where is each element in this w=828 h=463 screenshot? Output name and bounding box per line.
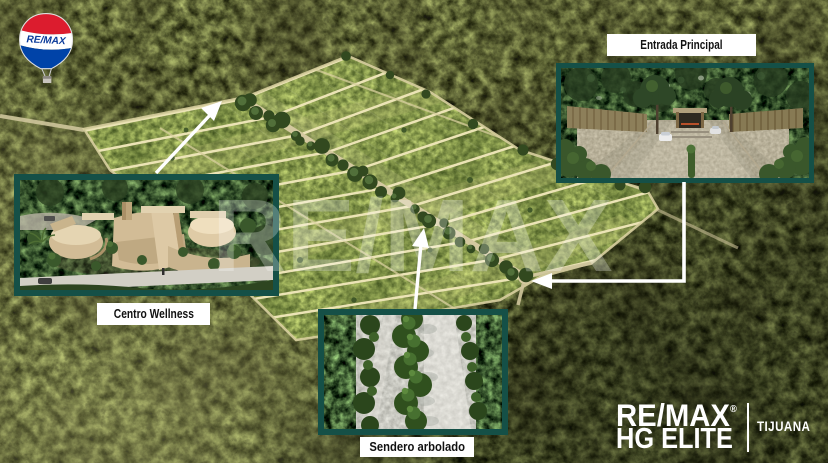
svg-text:RE/MAX: RE/MAX (26, 34, 67, 47)
